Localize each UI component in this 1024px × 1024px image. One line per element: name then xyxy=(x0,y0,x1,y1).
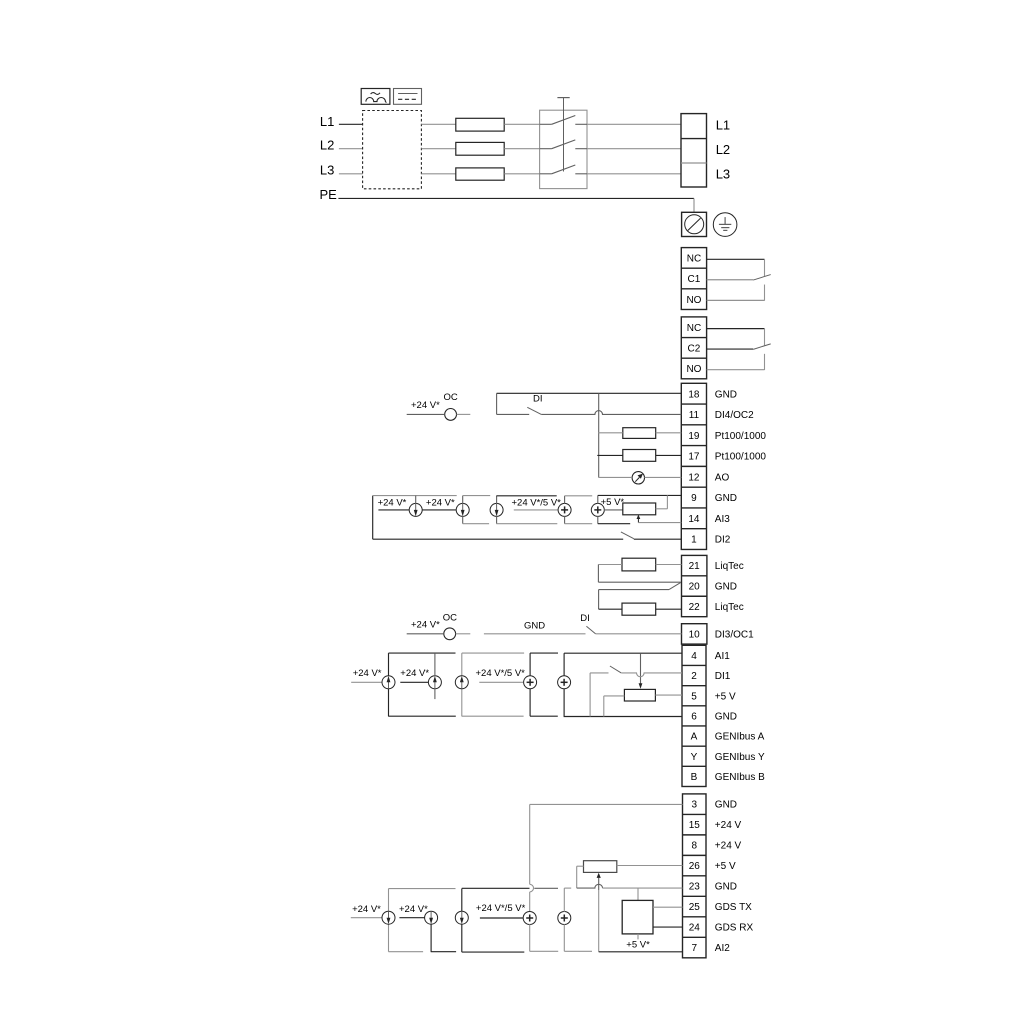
svg-text:21: 21 xyxy=(689,561,701,572)
svg-text:DI3/OC1: DI3/OC1 xyxy=(715,630,754,641)
svg-text:+5 V: +5 V xyxy=(715,691,736,702)
svg-text:25: 25 xyxy=(689,902,701,913)
svg-text:5: 5 xyxy=(691,691,697,702)
svg-text:DI: DI xyxy=(533,394,543,405)
svg-text:GND: GND xyxy=(715,800,737,811)
svg-text:PE: PE xyxy=(320,187,338,202)
svg-text:A: A xyxy=(691,732,698,743)
svg-text:14: 14 xyxy=(688,514,700,525)
svg-text:DI2: DI2 xyxy=(715,535,731,546)
svg-text:+24 V*: +24 V* xyxy=(426,498,455,509)
svg-text:+24 V*/5 V*: +24 V*/5 V* xyxy=(512,498,562,509)
svg-text:22: 22 xyxy=(689,602,701,613)
svg-text:+24 V*/5 V*: +24 V*/5 V* xyxy=(476,668,526,679)
svg-text:GENIbus Y: GENIbus Y xyxy=(715,752,765,763)
svg-text:DI1: DI1 xyxy=(715,671,731,682)
svg-text:L3: L3 xyxy=(716,166,730,181)
svg-text:20: 20 xyxy=(689,582,701,593)
svg-text:OC: OC xyxy=(443,612,457,623)
svg-text:23: 23 xyxy=(689,882,701,893)
svg-text:B: B xyxy=(691,772,698,783)
svg-text:AI3: AI3 xyxy=(715,514,730,525)
svg-text:AI2: AI2 xyxy=(715,943,730,954)
svg-text:1: 1 xyxy=(691,535,697,546)
svg-text:+24 V*: +24 V* xyxy=(399,904,428,915)
svg-text:11: 11 xyxy=(689,410,700,421)
svg-text:19: 19 xyxy=(688,431,700,442)
svg-text:GENIbus B: GENIbus B xyxy=(715,772,765,783)
svg-text:Pt100/1000: Pt100/1000 xyxy=(715,452,767,463)
svg-text:2: 2 xyxy=(691,671,697,682)
svg-text:24: 24 xyxy=(689,923,701,934)
svg-text:+5 V: +5 V xyxy=(715,861,736,872)
svg-text:10: 10 xyxy=(689,630,701,641)
svg-text:+24 V*: +24 V* xyxy=(378,498,407,509)
svg-text:OC: OC xyxy=(444,392,458,403)
svg-text:L1: L1 xyxy=(320,114,334,129)
svg-text:+24 V: +24 V xyxy=(715,820,742,831)
svg-text:17: 17 xyxy=(688,452,700,463)
svg-text:15: 15 xyxy=(689,820,701,831)
svg-text:C2: C2 xyxy=(688,343,701,354)
svg-text:LiqTec: LiqTec xyxy=(715,602,744,613)
svg-text:+24 V*: +24 V* xyxy=(353,668,382,679)
svg-text:+24 V*: +24 V* xyxy=(400,668,429,679)
svg-text:GND: GND xyxy=(715,389,737,400)
svg-text:26: 26 xyxy=(689,861,701,872)
svg-text:GND: GND xyxy=(524,621,545,632)
svg-text:DI4/OC2: DI4/OC2 xyxy=(715,410,754,421)
svg-text:C1: C1 xyxy=(688,274,701,285)
svg-text:6: 6 xyxy=(691,711,697,722)
svg-text:+5 V*: +5 V* xyxy=(626,940,650,951)
svg-text:GENIbus A: GENIbus A xyxy=(715,732,765,743)
svg-text:9: 9 xyxy=(691,493,697,504)
svg-text:GND: GND xyxy=(715,493,737,504)
svg-text:LiqTec: LiqTec xyxy=(715,561,744,572)
svg-text:4: 4 xyxy=(691,651,697,662)
svg-text:Y: Y xyxy=(691,752,698,763)
svg-text:NC: NC xyxy=(687,323,701,334)
svg-text:3: 3 xyxy=(691,800,697,811)
svg-text:8: 8 xyxy=(691,841,697,852)
svg-text:12: 12 xyxy=(688,472,700,483)
svg-text:GND: GND xyxy=(715,882,737,893)
svg-text:L2: L2 xyxy=(320,138,334,153)
svg-text:L3: L3 xyxy=(320,162,334,177)
svg-text:AI1: AI1 xyxy=(715,651,730,662)
svg-text:+24 V*: +24 V* xyxy=(411,619,440,630)
svg-text:18: 18 xyxy=(688,389,700,400)
svg-text:AO: AO xyxy=(715,472,730,483)
svg-text:GND: GND xyxy=(715,711,737,722)
svg-text:L1: L1 xyxy=(716,117,730,132)
svg-text:+24 V: +24 V xyxy=(715,841,742,852)
svg-text:NO: NO xyxy=(686,364,701,375)
svg-text:GND: GND xyxy=(715,582,737,593)
svg-text:L2: L2 xyxy=(716,142,730,157)
svg-text:NO: NO xyxy=(686,295,701,306)
svg-text:Pt100/1000: Pt100/1000 xyxy=(715,431,767,442)
svg-text:+5 V*: +5 V* xyxy=(601,497,625,508)
svg-text:+24 V*: +24 V* xyxy=(411,400,440,411)
svg-text:DI: DI xyxy=(580,613,590,624)
svg-text:GDS RX: GDS RX xyxy=(715,923,754,934)
svg-text:7: 7 xyxy=(691,943,697,954)
svg-text:+24 V*/5 V*: +24 V*/5 V* xyxy=(476,903,526,914)
svg-text:+24 V*: +24 V* xyxy=(352,904,381,915)
svg-text:GDS TX: GDS TX xyxy=(715,902,752,913)
svg-text:NC: NC xyxy=(687,254,701,265)
